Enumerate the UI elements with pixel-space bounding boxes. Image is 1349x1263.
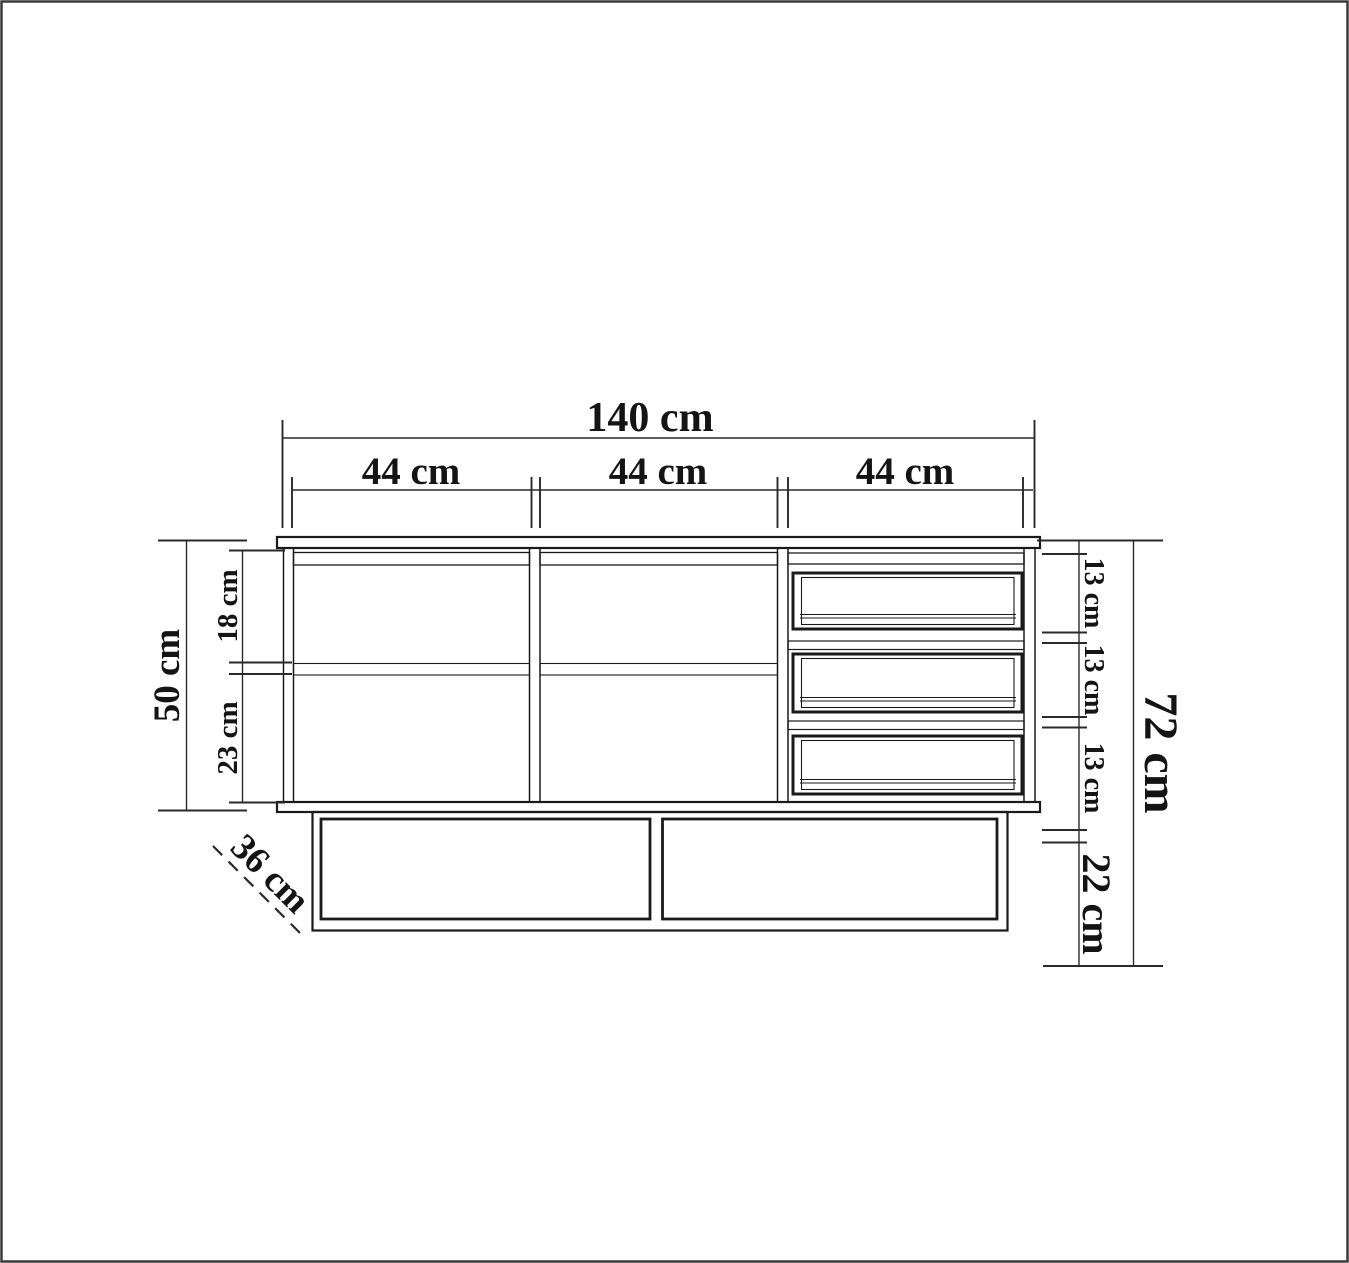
- dim-label-section-2: 44 cm: [609, 450, 708, 493]
- shelf-bay-1: [294, 664, 530, 676]
- drawer-3-handle: [800, 780, 1016, 784]
- cabinet-front-view: [277, 537, 1040, 931]
- drawer-2: [793, 654, 1022, 712]
- dim-section-widths: 44 cm 44 cm 44 cm: [292, 450, 1033, 528]
- dim-label-bottom-compartment: 23 cm: [212, 701, 244, 774]
- top-rail-drawer-bay: [788, 553, 1024, 564]
- dim-label-drawer-3: 13 cm: [1078, 743, 1109, 814]
- dim-label-section-3: 44 cm: [856, 450, 955, 493]
- drawer-1-front: [793, 573, 1022, 629]
- drawer-rail-1: [788, 641, 1024, 650]
- dim-right-heights: 13 cm 13 cm 13 cm 22 cm 72 cm: [1037, 540, 1187, 966]
- top-rail-bay-1: [294, 553, 530, 566]
- divider-panel-right: [778, 548, 789, 802]
- top-panel: [277, 537, 1040, 548]
- dim-label-total-height: 72 cm: [1134, 692, 1187, 813]
- right-side-panel: [1024, 548, 1035, 802]
- dim-label-drawer-2: 13 cm: [1078, 645, 1109, 716]
- top-rail-bay-2: [540, 553, 778, 566]
- left-side-panel: [284, 548, 294, 802]
- drawer-rail-2: [788, 721, 1024, 730]
- dim-label-depth: 36 cm: [222, 826, 317, 921]
- dimension-annotations: 140 cm 44 cm 44 cm 44 cm 50 cm 18 cm: [147, 395, 1187, 966]
- shelf-bay-2: [540, 664, 778, 676]
- dim-label-base-height: 22 cm: [1074, 853, 1119, 954]
- drawer-3: [793, 736, 1022, 794]
- dim-compartment-heights: 18 cm 23 cm: [212, 550, 292, 803]
- furniture-dimension-drawing: 140 cm 44 cm 44 cm 44 cm 50 cm 18 cm: [0, 0, 1349, 1263]
- page-border: [2, 2, 1348, 1262]
- drawer-3-inner-frame: [802, 741, 1015, 790]
- dim-label-drawer-1: 13 cm: [1078, 558, 1109, 629]
- dim-label-total-width: 140 cm: [586, 395, 713, 441]
- divider-panel-left: [530, 548, 541, 802]
- drawer-2-handle: [800, 698, 1016, 702]
- dim-label-carcass-height: 50 cm: [147, 629, 188, 723]
- drawer-1-handle: [800, 615, 1016, 619]
- base-front-right: [663, 819, 998, 919]
- drawer-1: [793, 573, 1022, 629]
- dim-label-section-1: 44 cm: [362, 450, 461, 493]
- base-front-left: [321, 819, 650, 919]
- drawer-2-inner-frame: [802, 659, 1015, 708]
- bottom-panel: [277, 802, 1040, 812]
- drawer-2-front: [793, 654, 1022, 712]
- base-outline: [313, 812, 1008, 931]
- dim-depth: 36 cm: [213, 826, 318, 937]
- technical-drawing-page: 140 cm 44 cm 44 cm 44 cm 50 cm 18 cm: [0, 0, 1349, 1263]
- drawer-3-front: [793, 736, 1022, 794]
- dim-label-top-compartment: 18 cm: [212, 569, 244, 642]
